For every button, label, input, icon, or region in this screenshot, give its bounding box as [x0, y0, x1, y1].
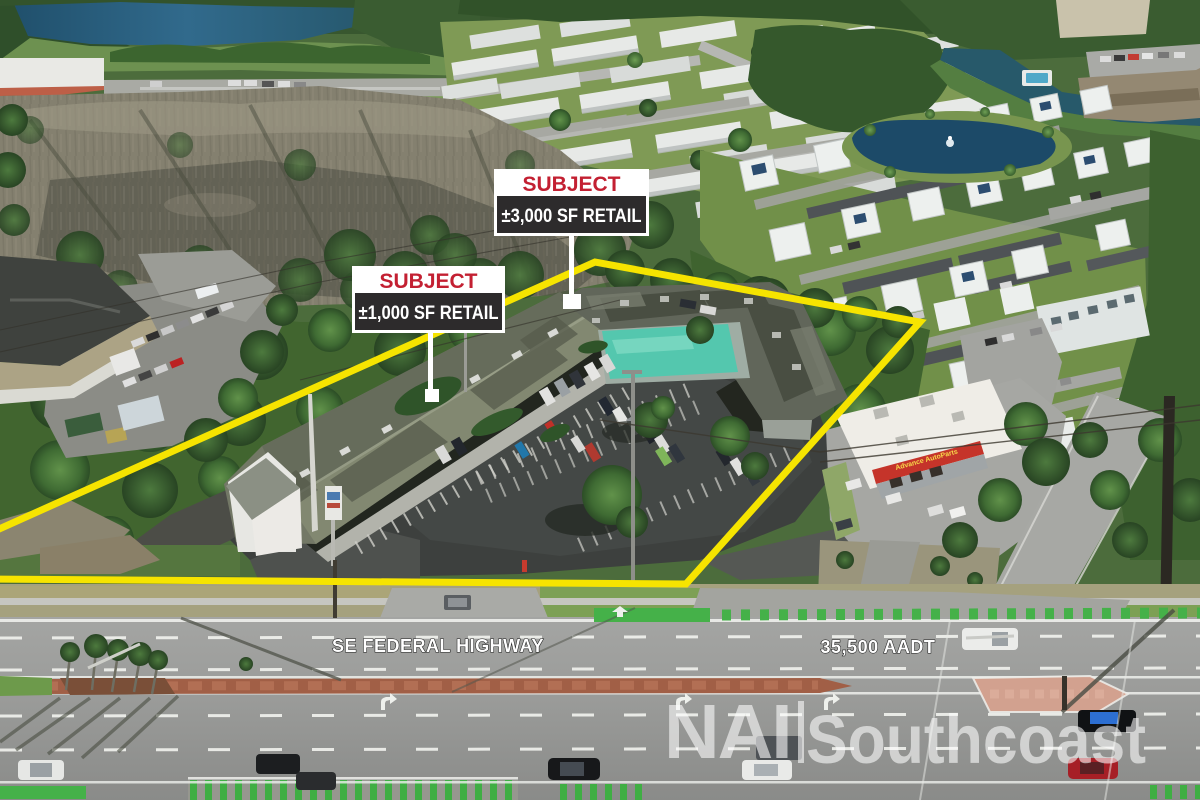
svg-text:35,500 AADT: 35,500 AADT [821, 637, 936, 657]
svg-text:SUBJECT: SUBJECT [379, 270, 477, 293]
svg-text:±3,000 SF RETAIL: ±3,000 SF RETAIL [502, 206, 642, 227]
svg-text:NAI: NAI [664, 689, 791, 775]
svg-text:SUBJECT: SUBJECT [522, 173, 620, 196]
svg-text:SE FEDERAL HIGHWAY: SE FEDERAL HIGHWAY [332, 636, 544, 656]
svg-text:±1,000 SF RETAIL: ±1,000 SF RETAIL [359, 303, 499, 324]
svg-text:Southcoast: Southcoast [806, 701, 1146, 778]
